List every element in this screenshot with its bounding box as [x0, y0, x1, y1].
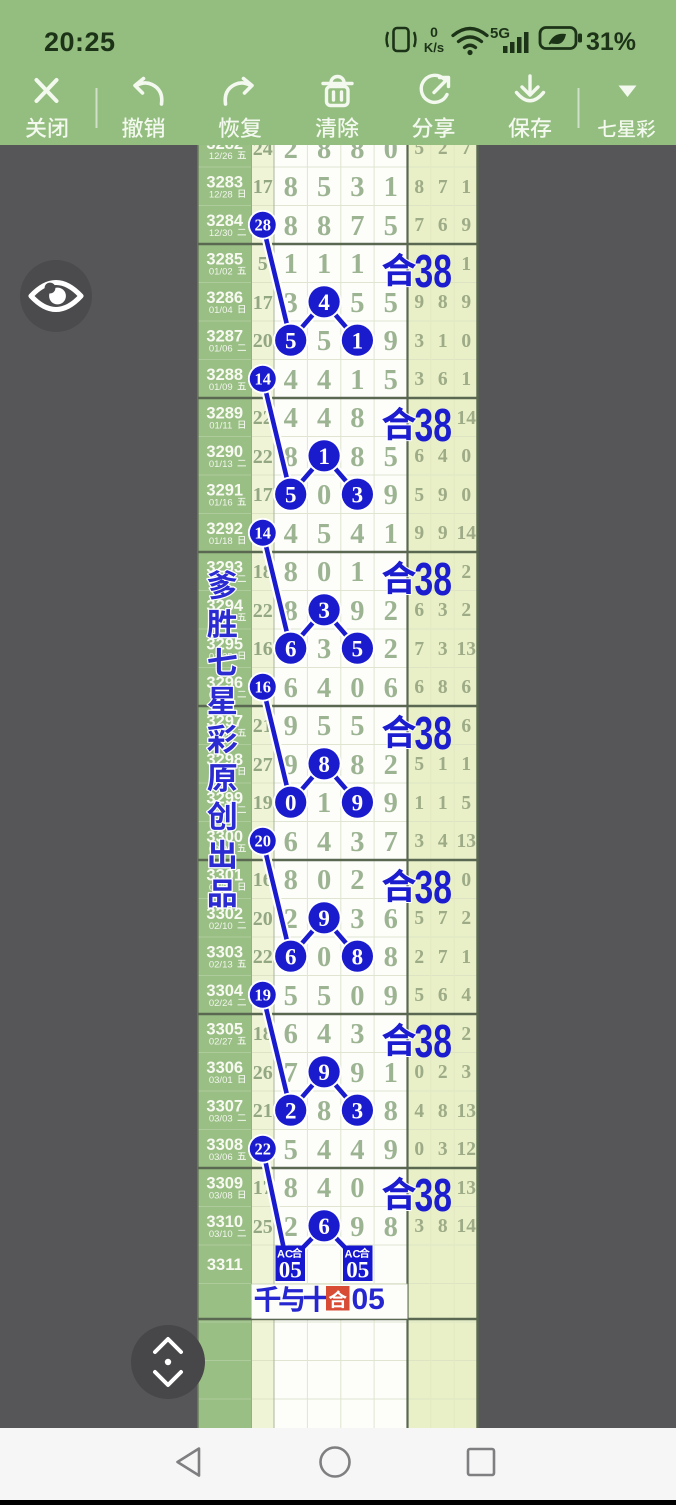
svg-text:9: 9 — [352, 791, 364, 816]
svg-text:2: 2 — [414, 947, 424, 968]
svg-text:1: 1 — [461, 754, 471, 775]
svg-text:25: 25 — [253, 1216, 273, 1238]
svg-text:6: 6 — [318, 1214, 330, 1239]
svg-text:0: 0 — [285, 791, 297, 816]
svg-text:1: 1 — [350, 557, 364, 588]
svg-text:1: 1 — [384, 172, 398, 203]
svg-text:2: 2 — [384, 634, 398, 665]
svg-text:13: 13 — [456, 831, 476, 852]
svg-text:6: 6 — [461, 677, 471, 698]
svg-text:1: 1 — [438, 754, 448, 775]
svg-text:9: 9 — [438, 523, 448, 544]
svg-text:22: 22 — [253, 600, 273, 622]
svg-text:8: 8 — [438, 677, 448, 698]
svg-text:3: 3 — [350, 827, 364, 858]
svg-text:13: 13 — [456, 1178, 476, 1199]
svg-text:7: 7 — [414, 215, 424, 236]
svg-text:6: 6 — [414, 446, 424, 467]
svg-text:38: 38 — [415, 707, 453, 759]
svg-text:01/06: 01/06 — [209, 344, 233, 355]
svg-text:21: 21 — [253, 1100, 273, 1122]
svg-text:22: 22 — [253, 946, 273, 968]
svg-text:03/03: 03/03 — [209, 1114, 233, 1125]
svg-text:9: 9 — [414, 292, 424, 313]
svg-text:2: 2 — [384, 596, 398, 627]
svg-text:5: 5 — [317, 326, 331, 357]
svg-text:1: 1 — [438, 793, 448, 814]
svg-text:5: 5 — [284, 1135, 298, 1166]
svg-text:0: 0 — [461, 446, 471, 467]
svg-text:9: 9 — [284, 711, 298, 742]
svg-text:1: 1 — [461, 947, 471, 968]
svg-text:6: 6 — [284, 827, 298, 858]
svg-text:4: 4 — [438, 446, 448, 467]
svg-text:13: 13 — [456, 1101, 476, 1122]
svg-text:22: 22 — [255, 1139, 272, 1158]
svg-text:1: 1 — [317, 788, 331, 819]
svg-text:1: 1 — [317, 249, 331, 280]
svg-text:5: 5 — [317, 519, 331, 550]
svg-text:6: 6 — [438, 369, 448, 390]
svg-text:5: 5 — [414, 485, 424, 506]
svg-text:01/13: 01/13 — [209, 459, 233, 470]
svg-text:9: 9 — [350, 1212, 364, 1243]
svg-text:1: 1 — [438, 331, 448, 352]
svg-text:9: 9 — [384, 981, 398, 1012]
svg-text:38: 38 — [415, 553, 453, 605]
svg-text:6: 6 — [461, 716, 471, 737]
svg-text:4: 4 — [350, 519, 364, 550]
svg-text:8: 8 — [438, 1216, 448, 1237]
svg-text:38: 38 — [415, 399, 453, 451]
svg-text:3: 3 — [317, 634, 331, 665]
svg-text:01/04: 01/04 — [209, 305, 233, 316]
svg-text:5: 5 — [317, 172, 331, 203]
svg-text:02/10: 02/10 — [209, 921, 233, 932]
svg-text:1: 1 — [352, 328, 364, 353]
svg-text:6: 6 — [438, 215, 448, 236]
svg-text:5: 5 — [284, 981, 298, 1012]
svg-text:5: 5 — [384, 211, 398, 242]
svg-text:0: 0 — [414, 1062, 424, 1083]
svg-text:3: 3 — [350, 904, 364, 935]
svg-text:8: 8 — [350, 750, 364, 781]
svg-text:2: 2 — [350, 865, 364, 896]
svg-text:8: 8 — [284, 865, 298, 896]
svg-text:4: 4 — [317, 1135, 331, 1166]
svg-text:3: 3 — [438, 600, 448, 621]
svg-text:9: 9 — [461, 292, 471, 313]
svg-text:20: 20 — [255, 831, 272, 850]
svg-text:2: 2 — [384, 750, 398, 781]
svg-text:0: 0 — [350, 981, 364, 1012]
svg-text:8: 8 — [414, 177, 424, 198]
svg-text:7: 7 — [438, 947, 448, 968]
svg-text:7: 7 — [438, 177, 448, 198]
svg-text:02/13: 02/13 — [209, 960, 233, 971]
svg-text:2: 2 — [461, 562, 471, 583]
svg-text:17: 17 — [253, 484, 273, 506]
svg-text:0: 0 — [350, 1173, 364, 1204]
svg-text:05: 05 — [352, 1283, 385, 1316]
svg-text:6: 6 — [414, 600, 424, 621]
svg-text:14: 14 — [456, 1216, 476, 1237]
svg-text:8: 8 — [317, 211, 331, 242]
svg-text:9: 9 — [318, 1060, 330, 1085]
svg-text:7: 7 — [384, 827, 398, 858]
svg-text:4: 4 — [284, 365, 298, 396]
svg-text:3: 3 — [461, 1062, 471, 1083]
svg-text:9: 9 — [350, 596, 364, 627]
svg-text:5: 5 — [414, 908, 424, 929]
svg-text:28: 28 — [255, 215, 272, 234]
svg-text:9: 9 — [461, 215, 471, 236]
svg-text:8: 8 — [438, 292, 448, 313]
svg-text:01/18: 01/18 — [209, 536, 233, 547]
svg-text:3: 3 — [414, 1216, 424, 1237]
svg-text:02/27: 02/27 — [209, 1037, 233, 1048]
svg-text:8: 8 — [384, 1096, 398, 1127]
svg-text:9: 9 — [318, 906, 330, 931]
svg-text:1: 1 — [384, 1058, 398, 1089]
svg-text:4: 4 — [414, 1101, 424, 1122]
svg-text:14: 14 — [255, 369, 272, 388]
svg-text:9: 9 — [384, 788, 398, 819]
svg-text:8: 8 — [384, 1212, 398, 1243]
svg-text:03/10: 03/10 — [209, 1229, 233, 1240]
svg-text:01/16: 01/16 — [209, 498, 233, 509]
svg-text:3: 3 — [350, 1019, 364, 1050]
svg-text:38: 38 — [415, 1015, 453, 1067]
svg-text:3: 3 — [352, 482, 364, 507]
svg-text:5: 5 — [414, 754, 424, 775]
svg-text:9: 9 — [414, 523, 424, 544]
svg-text:7: 7 — [414, 639, 424, 660]
svg-text:38: 38 — [415, 861, 453, 913]
svg-text:01/02: 01/02 — [209, 267, 233, 278]
svg-text:01/11: 01/11 — [209, 421, 232, 432]
svg-text:14: 14 — [456, 408, 476, 429]
svg-text:0: 0 — [317, 557, 331, 588]
svg-text:03/01: 03/01 — [209, 1075, 233, 1086]
svg-text:8: 8 — [438, 1101, 448, 1122]
svg-text:5: 5 — [317, 711, 331, 742]
svg-text:4: 4 — [317, 365, 331, 396]
svg-text:3: 3 — [318, 598, 330, 623]
svg-text:4: 4 — [350, 1135, 364, 1166]
svg-text:0: 0 — [461, 331, 471, 352]
svg-text:12/28: 12/28 — [209, 190, 233, 201]
svg-text:16: 16 — [253, 638, 273, 660]
svg-text:9: 9 — [384, 326, 398, 357]
svg-text:5: 5 — [384, 442, 398, 473]
svg-text:6: 6 — [384, 673, 398, 704]
svg-text:38: 38 — [415, 1169, 453, 1221]
svg-text:19: 19 — [255, 985, 272, 1004]
svg-text:4: 4 — [317, 1173, 331, 1204]
svg-text:9: 9 — [384, 480, 398, 511]
svg-text:3: 3 — [414, 331, 424, 352]
svg-text:9: 9 — [438, 485, 448, 506]
svg-text:1: 1 — [350, 365, 364, 396]
svg-text:6: 6 — [284, 673, 298, 704]
svg-text:5: 5 — [352, 637, 364, 662]
svg-text:2: 2 — [438, 1062, 448, 1083]
svg-text:0: 0 — [430, 24, 438, 40]
svg-text:0: 0 — [317, 865, 331, 896]
svg-text:4: 4 — [318, 290, 330, 315]
svg-text:1: 1 — [461, 254, 471, 275]
svg-text:12: 12 — [456, 1139, 476, 1160]
svg-text:14: 14 — [255, 523, 272, 542]
svg-text:1: 1 — [350, 249, 364, 280]
svg-text:3: 3 — [414, 369, 424, 390]
svg-text:3: 3 — [352, 1099, 364, 1124]
svg-text:3: 3 — [438, 1139, 448, 1160]
svg-text:6: 6 — [285, 945, 297, 970]
svg-text:1: 1 — [414, 793, 424, 814]
svg-text:6: 6 — [414, 677, 424, 698]
svg-text:1: 1 — [284, 249, 298, 280]
svg-text:8: 8 — [384, 942, 398, 973]
svg-text:1: 1 — [318, 444, 330, 469]
svg-text:5: 5 — [384, 365, 398, 396]
svg-text:5: 5 — [317, 981, 331, 1012]
svg-text:8: 8 — [284, 211, 298, 242]
svg-text:2: 2 — [461, 1024, 471, 1045]
svg-text:8: 8 — [318, 752, 330, 777]
svg-text:20: 20 — [253, 330, 273, 352]
svg-text:03/08: 03/08 — [209, 1191, 233, 1202]
svg-text:2: 2 — [461, 600, 471, 621]
svg-text:6: 6 — [285, 637, 297, 662]
svg-text:3: 3 — [414, 831, 424, 852]
svg-text:6: 6 — [284, 1019, 298, 1050]
svg-text:4: 4 — [461, 985, 471, 1006]
svg-text:3311: 3311 — [207, 1256, 243, 1274]
svg-text:0: 0 — [350, 673, 364, 704]
svg-text:1: 1 — [461, 177, 471, 198]
svg-text:6: 6 — [384, 904, 398, 935]
svg-text:17: 17 — [253, 176, 273, 198]
svg-text:4: 4 — [284, 403, 298, 434]
svg-text:4: 4 — [284, 519, 298, 550]
svg-text:8: 8 — [317, 1096, 331, 1127]
svg-text:13: 13 — [456, 639, 476, 660]
svg-text:9: 9 — [350, 1058, 364, 1089]
svg-text:9: 9 — [384, 1135, 398, 1166]
svg-text:4: 4 — [317, 403, 331, 434]
svg-text:7: 7 — [438, 908, 448, 929]
svg-text:05: 05 — [279, 1258, 302, 1283]
svg-text:31%: 31% — [586, 28, 636, 56]
svg-text:8: 8 — [284, 1173, 298, 1204]
svg-text:5G: 5G — [490, 25, 510, 42]
svg-text:38: 38 — [415, 245, 453, 297]
svg-text:5: 5 — [285, 328, 297, 353]
svg-text:22: 22 — [253, 446, 273, 468]
svg-text:8: 8 — [350, 403, 364, 434]
svg-text:6: 6 — [438, 985, 448, 1006]
svg-text:3: 3 — [438, 639, 448, 660]
svg-text:5: 5 — [350, 711, 364, 742]
svg-text:19: 19 — [253, 792, 273, 814]
svg-text:27: 27 — [253, 754, 273, 776]
svg-text:8: 8 — [352, 945, 364, 970]
svg-text:3: 3 — [350, 172, 364, 203]
svg-text:4: 4 — [317, 1019, 331, 1050]
svg-text:1: 1 — [384, 519, 398, 550]
svg-text:4: 4 — [438, 831, 448, 852]
svg-text:0: 0 — [317, 480, 331, 511]
svg-text:8: 8 — [350, 442, 364, 473]
svg-text:0: 0 — [414, 1139, 424, 1160]
svg-text:8: 8 — [284, 172, 298, 203]
svg-text:4: 4 — [317, 673, 331, 704]
svg-text:20: 20 — [253, 908, 273, 930]
svg-text:5: 5 — [461, 793, 471, 814]
svg-text:17: 17 — [253, 292, 273, 314]
svg-text:7: 7 — [350, 211, 364, 242]
svg-text:0: 0 — [461, 485, 471, 506]
svg-text:12/30: 12/30 — [209, 228, 233, 239]
svg-text:05: 05 — [346, 1258, 369, 1283]
svg-text:20:25: 20:25 — [44, 27, 116, 57]
svg-text:2: 2 — [461, 908, 471, 929]
svg-text:14: 14 — [456, 523, 476, 544]
svg-text:5: 5 — [414, 985, 424, 1006]
svg-text:02/24: 02/24 — [209, 998, 233, 1009]
svg-text:5: 5 — [350, 288, 364, 319]
svg-text:5: 5 — [285, 482, 297, 507]
svg-text:0: 0 — [317, 942, 331, 973]
svg-text:01/09: 01/09 — [209, 382, 233, 393]
svg-text:16: 16 — [255, 677, 272, 696]
svg-text:26: 26 — [253, 1062, 273, 1084]
svg-text:4: 4 — [317, 827, 331, 858]
svg-text:K/s: K/s — [424, 40, 444, 55]
svg-text:03/06: 03/06 — [209, 1152, 233, 1163]
svg-text:2: 2 — [285, 1099, 297, 1124]
svg-text:12/26: 12/26 — [209, 151, 233, 162]
svg-text:8: 8 — [284, 557, 298, 588]
svg-text:5: 5 — [384, 288, 398, 319]
svg-text:0: 0 — [461, 870, 471, 891]
svg-text:1: 1 — [461, 369, 471, 390]
